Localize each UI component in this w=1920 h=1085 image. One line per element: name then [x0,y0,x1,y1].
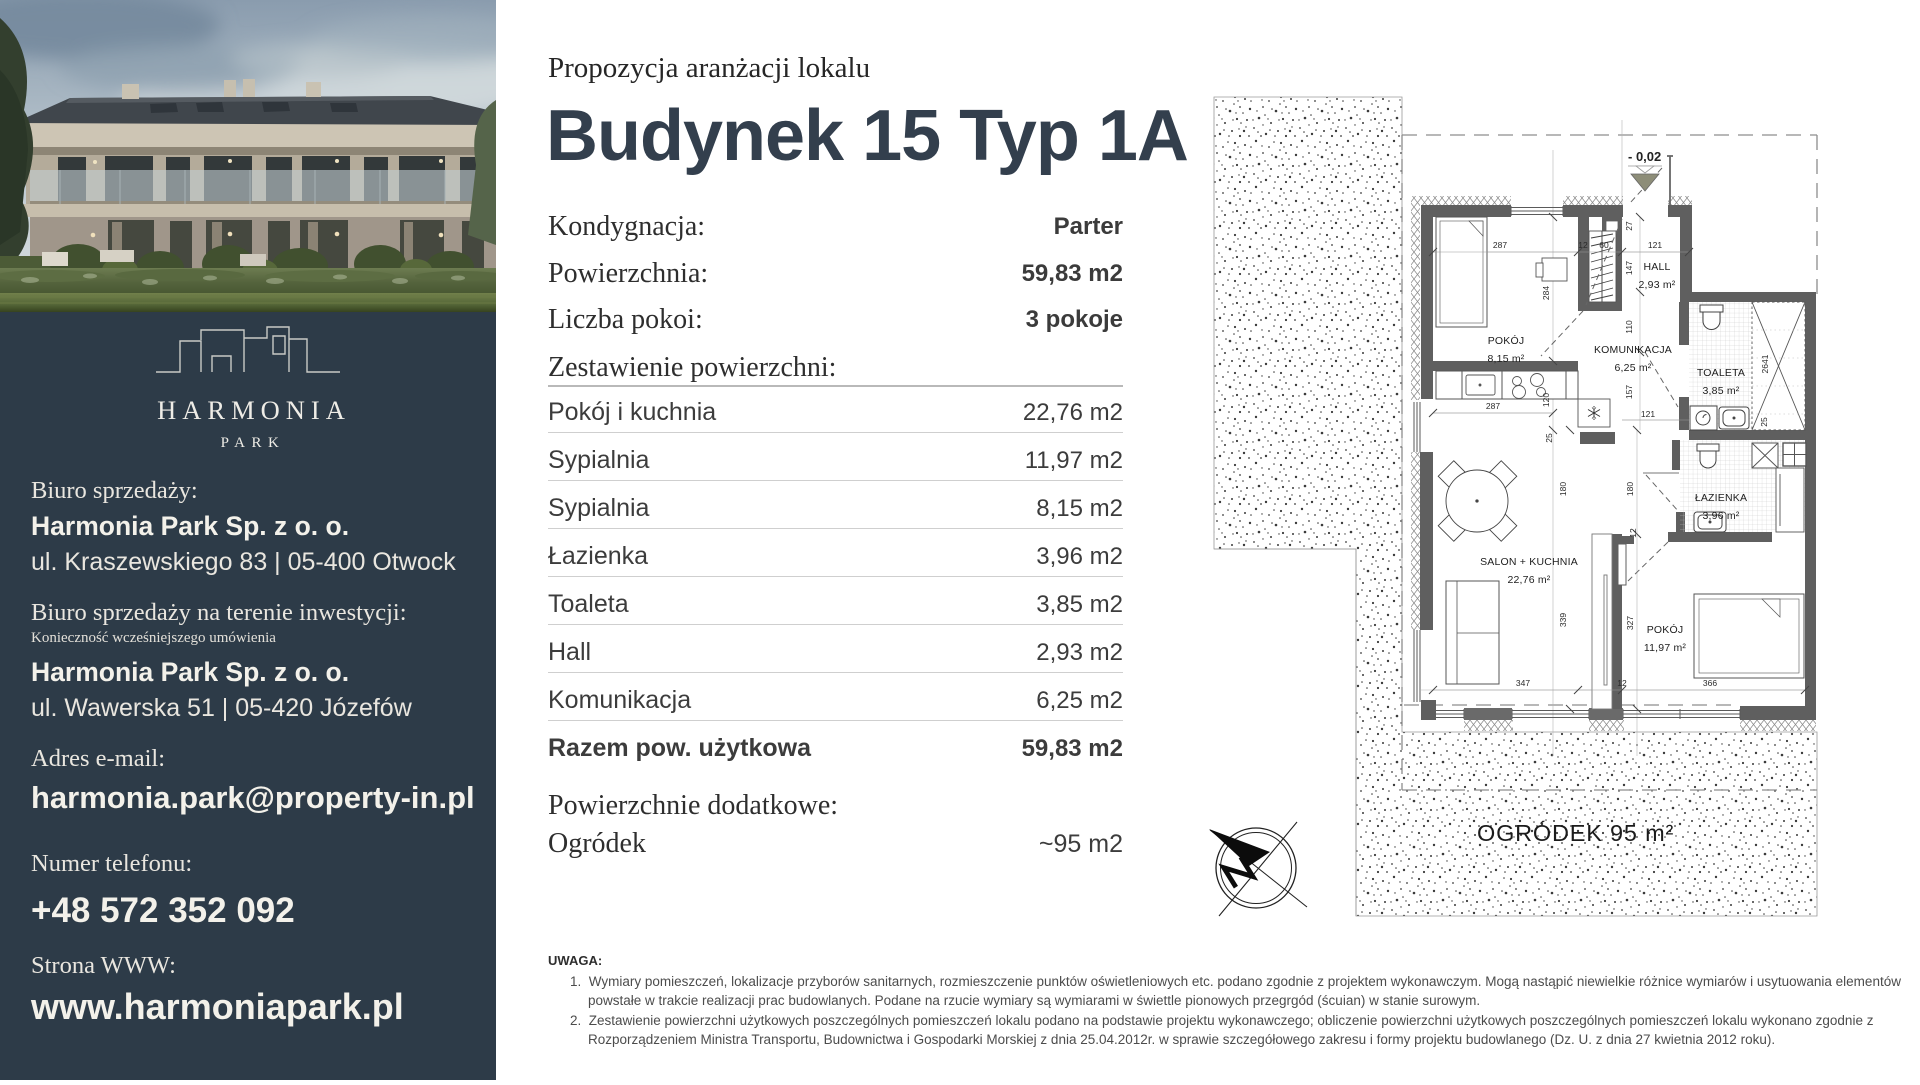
svg-text:60: 60 [1599,240,1609,250]
svg-text:3,96 m²: 3,96 m² [1703,510,1740,522]
svg-text:25: 25 [1759,417,1769,427]
svg-text:11,97 m²: 11,97 m² [1644,642,1687,654]
svg-text:339: 339 [1558,613,1568,627]
svg-text:284: 284 [1541,286,1551,300]
svg-text:6,25 m²: 6,25 m² [1615,362,1652,374]
svg-text:SALON + KUCHNIA: SALON + KUCHNIA [1480,556,1578,568]
svg-text:27: 27 [1624,221,1634,231]
svg-text:HALL: HALL [1643,261,1670,273]
svg-text:8,15 m²: 8,15 m² [1488,353,1525,365]
svg-text:180: 180 [1558,482,1568,496]
svg-text:121: 121 [1648,240,1662,250]
svg-text:22,76 m²: 22,76 m² [1507,574,1550,586]
svg-text:347: 347 [1516,678,1530,688]
svg-text:366: 366 [1703,678,1717,688]
svg-text:POKÓJ: POKÓJ [1647,623,1684,636]
svg-text:121: 121 [1641,409,1655,419]
svg-text:25: 25 [1544,433,1554,443]
svg-text:110: 110 [1624,320,1634,334]
svg-text:ŁAZIENKA: ŁAZIENKA [1695,492,1747,504]
svg-text:OGRÓDEK 95 m²: OGRÓDEK 95 m² [1477,820,1674,846]
svg-text:2,93 m²: 2,93 m² [1639,279,1676,291]
svg-text:12: 12 [1578,240,1588,250]
svg-text:180: 180 [1625,482,1635,496]
svg-text:2641: 2641 [1760,354,1770,373]
svg-text:12: 12 [1628,528,1638,538]
svg-text:12: 12 [1617,678,1627,688]
svg-text:3,85 m²: 3,85 m² [1703,385,1740,397]
svg-text:287: 287 [1486,401,1500,411]
svg-text:120: 120 [1541,393,1551,407]
svg-text:287: 287 [1493,240,1507,250]
svg-text:KOMUNIKACJA: KOMUNIKACJA [1594,344,1672,356]
svg-text:- 0,02: - 0,02 [1628,149,1661,164]
svg-text:327: 327 [1625,616,1635,630]
svg-text:157: 157 [1624,385,1634,399]
svg-text:POKÓJ: POKÓJ [1488,334,1525,347]
svg-text:147: 147 [1624,261,1634,275]
svg-text:TOALETA: TOALETA [1697,367,1745,379]
